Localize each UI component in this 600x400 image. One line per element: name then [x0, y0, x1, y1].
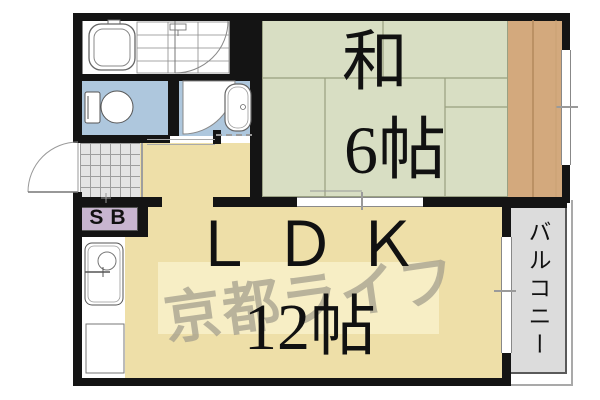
toilet-icon: [85, 91, 133, 123]
kitchen-sink-icon: [85, 243, 123, 305]
washitsu-name-label: 和: [270, 24, 480, 102]
counter-grid: [137, 22, 229, 73]
floorplan: 京都ライフ 和 6帖 ＬＤＫ 12帖 バルコニー SB: [0, 0, 600, 400]
door-arc-entry: [28, 142, 111, 203]
shoebox-label: SB: [80, 205, 138, 231]
balcony-label: バルコニー: [518, 206, 558, 374]
ldk-name-label: ＬＤＫ: [160, 208, 470, 284]
ldk-size-label: 12帖: [155, 286, 465, 370]
washitsu-size-label: 6帖: [280, 106, 510, 194]
wood-strip-lines: [533, 20, 556, 197]
appliance-space: [86, 324, 124, 373]
washbasin-icon: [89, 20, 135, 70]
bathtub-icon: [225, 84, 251, 131]
